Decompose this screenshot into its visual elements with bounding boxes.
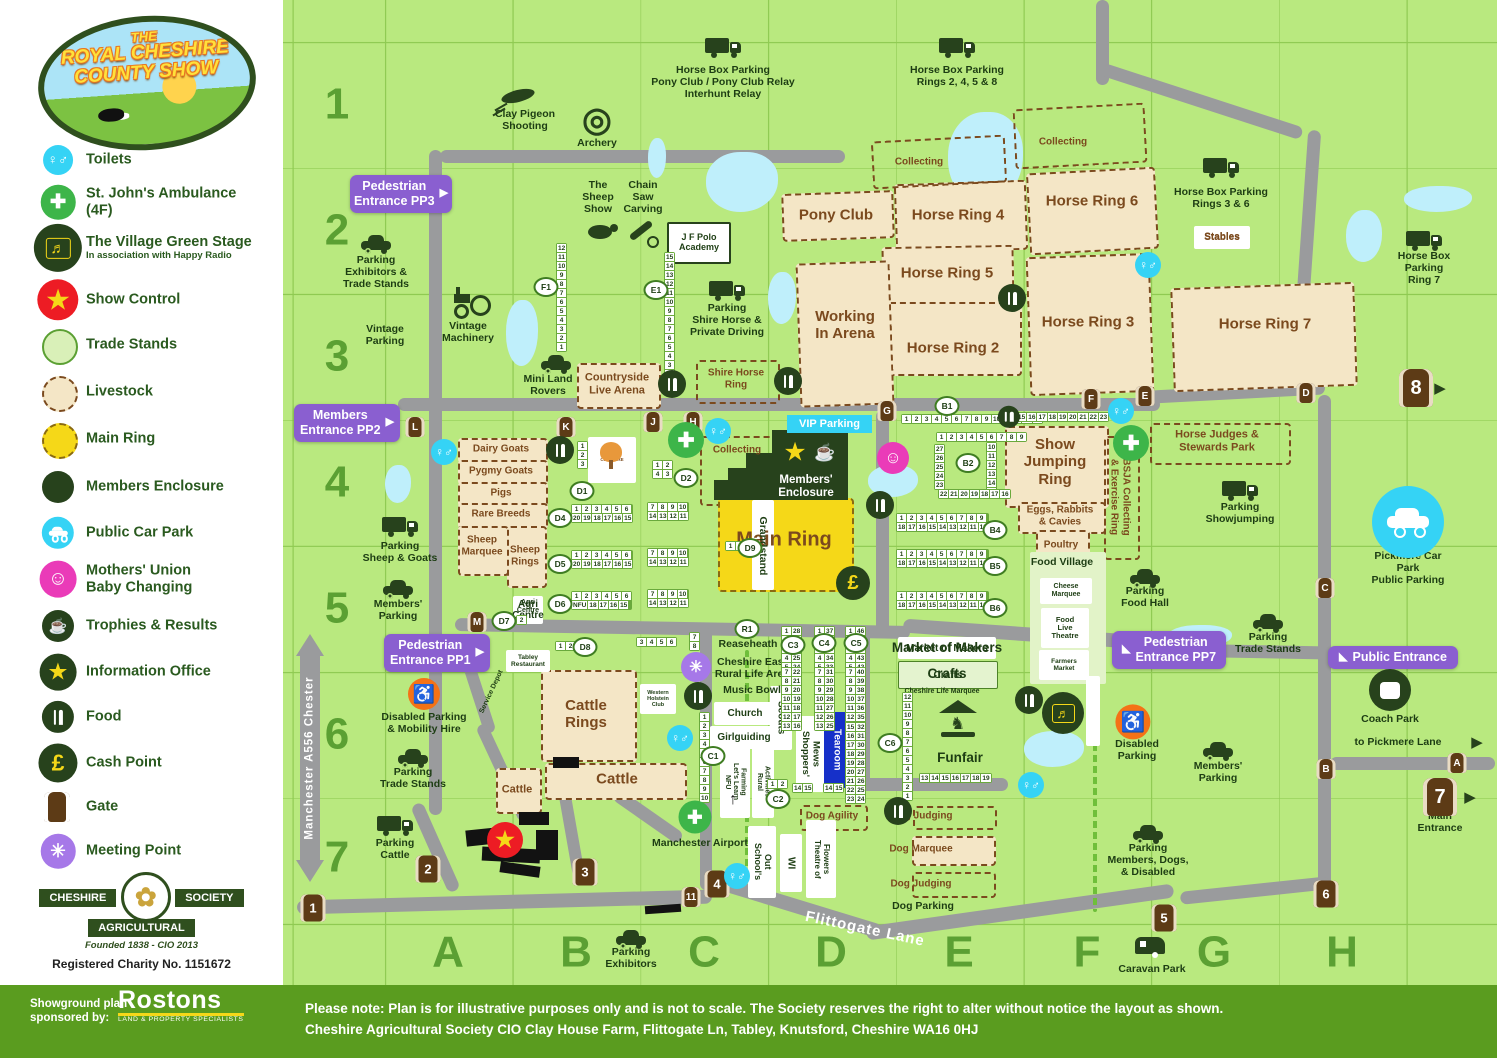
stand-row: 123456 (572, 505, 632, 513)
entrance-label: Public Entrance (1352, 650, 1446, 665)
members-enclosure-area (746, 453, 776, 500)
building (519, 812, 549, 825)
stand-number: 6 (557, 298, 566, 306)
stand-number: 16 (613, 560, 622, 568)
map-label: Parking Sheep & Goats (363, 540, 438, 564)
map-label: Music Bowl (723, 684, 781, 696)
stand-number: 7 (962, 415, 971, 423)
stand-number: 14 (648, 558, 657, 566)
stand-number: 16 (613, 514, 622, 522)
building (499, 861, 540, 877)
trade-strip: 123456789181716151413121110 (896, 513, 989, 532)
mainring-circle-icon (42, 423, 78, 459)
stand-number: 23 (1099, 413, 1108, 421)
footer-notes: Please note: Plan is for illustrative pu… (305, 999, 1223, 1041)
stand-number: 15 (803, 784, 812, 792)
map-label: Dog Marquee (889, 843, 952, 855)
stand-number: 14 (938, 559, 947, 567)
stand-number: 8 (690, 642, 699, 650)
stand-number: 1 (897, 592, 906, 600)
stand-row: 1037 (846, 695, 865, 703)
stand-row: 2324 (846, 795, 865, 803)
stand-number: 30 (825, 677, 834, 685)
pond (385, 465, 411, 503)
pond (768, 272, 796, 324)
arrow-r-icon: ▶ (1471, 733, 1483, 751)
stand-row: 78910 (648, 503, 688, 511)
entrance-pedestrian-entrance-pp1: Pedestrian Entrance PP1▶ (384, 634, 490, 672)
stand-number: 16 (951, 774, 960, 782)
stand-row: 123456789 (897, 514, 988, 522)
stand-number: 14 (938, 601, 947, 609)
stand-number: 6 (947, 592, 956, 600)
stand-number: 4 (846, 654, 855, 662)
trade-strip: 7891014131211 (647, 502, 689, 521)
stand-number: 32 (856, 723, 865, 731)
stand-number: 7 (782, 668, 791, 676)
row-label-3: 3 (325, 332, 349, 383)
map-label: Collecting (713, 444, 761, 456)
stand-number: 3 (700, 731, 709, 739)
stand-number: 4 (927, 514, 936, 522)
map-label: Eggs, Rabbits & Cavies (1027, 505, 1094, 528)
map-label: Cheshire Life Marquee (904, 688, 979, 696)
stand-number: 17 (907, 523, 916, 531)
trade-strip: 1415 (823, 783, 844, 793)
a556-arrow-up-icon (296, 634, 324, 656)
stand-number: 13 (665, 271, 674, 279)
col-label-G: G (1197, 928, 1231, 979)
stand-number: 4 (665, 352, 674, 360)
trade-strip: 123456789181716151413121110 (896, 591, 989, 610)
stand-number: 18 (1048, 413, 1057, 421)
stand-number: 11 (903, 702, 912, 710)
stand-number: 7 (957, 514, 966, 522)
stand-row: 1415 (824, 784, 843, 792)
stand-number: 3 (592, 592, 601, 600)
map-label: Members' Parking (374, 598, 423, 622)
stand-number: 13 (948, 559, 957, 567)
stand-number: 20 (846, 768, 855, 776)
stand-number: 19 (792, 695, 801, 703)
stand-number: 25 (792, 654, 801, 662)
map-label: Countryside Live Arena (585, 371, 649, 396)
rostons-name: Rostons (118, 987, 244, 1016)
rostons-subtitle: LAND & PROPERTY SPECIALISTS (118, 1016, 244, 1023)
stand-number: 39 (856, 677, 865, 685)
plus-icon: ✚ (1113, 425, 1149, 461)
arrow-r-icon: ▶ (1434, 379, 1446, 397)
stand-number: 8 (658, 590, 667, 598)
stand-number: 1 (700, 713, 709, 721)
food-icon (1015, 686, 1043, 714)
stand-number: 21 (846, 777, 855, 785)
trade-strip-badge-D2: D2 (674, 468, 699, 488)
pond (1404, 186, 1472, 212)
footer-bar: Showground plan sponsored by: Rostons LA… (0, 985, 1497, 1058)
public-car-park-icon (42, 517, 74, 549)
stand-number: 2 (947, 433, 956, 441)
stand-number: 17 (599, 601, 608, 609)
stand-number: 7 (846, 668, 855, 676)
gate-3: 3 (573, 859, 598, 886)
stand-number: 31 (856, 732, 865, 740)
stand-number: 3 (557, 325, 566, 333)
trade-strip: 7228219201019111812171316 (781, 667, 802, 731)
stand-number: 15 (834, 784, 843, 792)
map-label: Collecting (1039, 136, 1087, 148)
trade-strip-badge-D4: D4 (548, 508, 573, 528)
trade-strip-badge-C3: C3 (781, 635, 806, 655)
stand-row: 929 (815, 686, 834, 694)
stand-number: 4 (927, 550, 936, 558)
map-label: Parking Shire Horse & Private Driving (690, 302, 764, 338)
pond (648, 138, 666, 178)
trade-strip-badge-D5: D5 (548, 554, 573, 574)
plus-icon: ✚ (679, 801, 712, 834)
map-label: Parking Food Hall (1121, 585, 1169, 609)
stand-number: 9 (815, 686, 824, 694)
stand-number: 3 (665, 361, 674, 369)
gate-B: B (1317, 759, 1336, 779)
map-label: Coach Park (1361, 713, 1419, 725)
row-label-1: 1 (325, 80, 349, 131)
legend-label: Mothers' Union Baby Changing (86, 562, 192, 595)
stand-row: 2225 (846, 786, 865, 794)
legend-label: Members Enclosure (86, 479, 224, 496)
stand-number: 36 (856, 704, 865, 712)
toilets-icon: ♀♂ (1108, 398, 1134, 424)
stand-row: 14131211 (648, 599, 688, 607)
stand-number: 18 (980, 490, 989, 498)
stand-number: 4 (647, 638, 656, 646)
map-label: Horse Judges & Stewards Park (1175, 428, 1259, 453)
stand-number: 9 (982, 415, 991, 423)
food-icon (774, 367, 802, 395)
stand-number: 10 (903, 711, 912, 719)
gate-6: 6 (1314, 881, 1339, 908)
stand-number: 10 (987, 443, 996, 451)
stand-row: 2027 (846, 768, 865, 776)
stand-number: 1 (897, 550, 906, 558)
stand-number: 22 (939, 490, 948, 498)
stand-row: 1415 (793, 784, 812, 792)
stand-number: 18 (592, 514, 601, 522)
stand-number: 14 (648, 599, 657, 607)
row-label-6: 6 (325, 710, 349, 761)
trade-strip: 12 (767, 779, 788, 789)
stand-row: 78910 (648, 549, 688, 557)
stand-number: 12 (557, 244, 566, 252)
disabled-icon: ♿ (408, 678, 440, 710)
stand-number: 1 (902, 415, 911, 423)
stand-number: NFU (572, 601, 587, 609)
livestock-circle-icon (42, 376, 78, 412)
legend-label: St. John's Ambulance (4F) (86, 185, 236, 218)
stand-number: 17 (846, 741, 855, 749)
building (645, 904, 681, 914)
stand-number: 18 (792, 704, 801, 712)
map-box: J F Polo Academy (667, 222, 731, 264)
map-label: Horse Ring 4 (912, 206, 1005, 223)
stand-number: 15 (623, 560, 632, 568)
stand-number: 13 (658, 558, 667, 566)
stand-row: 1217 (782, 713, 801, 721)
stand-number: 15 (928, 601, 937, 609)
stand-number: 13 (987, 470, 996, 478)
stand-number: 7 (815, 668, 824, 676)
legend-label: Trade Stands (86, 337, 177, 354)
col-label-D: D (815, 928, 847, 979)
map-label: Pigs (490, 487, 511, 499)
stand-number: 5 (937, 592, 946, 600)
trade-strip-badge-C2: C2 (766, 789, 791, 809)
map-box: Cheese Marquee (1040, 578, 1092, 604)
stand-number: 13 (920, 774, 929, 782)
stand-number: 11 (782, 704, 791, 712)
col-label-E: E (944, 928, 973, 979)
road (1180, 876, 1331, 905)
stand-number: 2 (557, 334, 566, 342)
gate-C: C (1316, 578, 1335, 598)
stand-number: 43 (856, 654, 865, 662)
stand-number: 1 (578, 442, 587, 450)
stand-number: 7 (557, 289, 566, 297)
stand-row: 123456789 (937, 433, 1026, 441)
stand-number: 19 (970, 490, 979, 498)
trade-strip: 121110987654321 (902, 692, 913, 801)
stand-number: 2 (907, 550, 916, 558)
trade-strip: 2 (516, 615, 527, 625)
trade-strip: 1415 (792, 783, 813, 793)
stand-number: 10 (815, 695, 824, 703)
map-label: Horse Ring 2 (907, 339, 1000, 356)
entrance-label: Pedestrian Entrance PP7 (1135, 635, 1216, 665)
stand-row: 14131211 (648, 512, 688, 520)
stand-number: 20 (572, 560, 581, 568)
stand-number: 8 (972, 415, 981, 423)
stand-number: 5 (612, 592, 621, 600)
stand-number: 6 (947, 550, 956, 558)
stand-number: 9 (557, 271, 566, 279)
map-label: Parking Members, Dogs, & Disabled (1107, 842, 1188, 878)
stand-row: 1019 (782, 695, 801, 703)
toilets-icon: ♀♂ (1135, 252, 1161, 278)
stand-number: 9 (977, 514, 986, 522)
stand-number: 1 (937, 433, 946, 441)
stand-number: 8 (967, 514, 976, 522)
stand-number: 15 (665, 253, 674, 261)
stand-number: 27 (825, 704, 834, 712)
stand-number: 28 (856, 759, 865, 767)
col-label-B: B (560, 928, 592, 979)
legend-label: Meeting Point (86, 843, 181, 860)
stand-number: 23 (935, 481, 944, 489)
stand-number: 6 (947, 514, 956, 522)
trade-strip: 123 (577, 441, 588, 469)
map-label: Horse Ring 3 (1042, 313, 1135, 330)
stand-number: 7 (957, 550, 966, 558)
stand-number: 11 (679, 558, 688, 566)
map-label: Parking Trade Stands (1235, 631, 1301, 655)
footer-note-2: Cheshire Agricultural Society CIO Clay H… (305, 1020, 1223, 1041)
map-label: Stables (1204, 231, 1240, 243)
map-label: Horse Box Parking Pony Club / Pony Club … (651, 64, 795, 100)
stand-row: 1127 (815, 704, 834, 712)
trade-strip: 151413121110987654321 (664, 252, 675, 388)
stand-number: 30 (856, 741, 865, 749)
stand-number: 10 (782, 695, 791, 703)
entrance-arrow-icon: ▶ (476, 646, 484, 659)
stand-row: 740 (846, 668, 865, 676)
stand-number: 1 (556, 642, 565, 650)
stand-number: 31 (825, 668, 834, 676)
entrance-arrow-icon: ▶ (440, 187, 448, 200)
stand-row: 128 (782, 627, 801, 635)
stand-number: 4 (782, 654, 791, 662)
stand-number: 1 (653, 461, 662, 469)
stand-number: 9 (1017, 433, 1026, 441)
stand-number: 29 (856, 750, 865, 758)
pond (1024, 731, 1084, 767)
col-label-F: F (1074, 928, 1101, 979)
pond (506, 300, 538, 366)
pond (1346, 210, 1382, 262)
stand-row: 1532 (846, 723, 865, 731)
stand-row: 722 (782, 668, 801, 676)
legend-label: Trophies & Results (86, 618, 217, 635)
stand-number: 9 (846, 686, 855, 694)
stand-number: 4 (557, 316, 566, 324)
trade-strip: 123456NFU18171615 (571, 591, 632, 610)
stand-number: 14 (648, 512, 657, 520)
show-control-icon: ★ (487, 822, 523, 858)
map-box: Western Holstein Club (640, 684, 676, 714)
food-icon (998, 406, 1020, 428)
stand-number: 5 (665, 343, 674, 351)
map-label: Cheshire East Rural Life Area (715, 656, 789, 680)
stand-number: 6 (952, 415, 961, 423)
gate-icon (44, 792, 70, 822)
stand-row: 201918171615 (572, 514, 632, 522)
stand-number: 28 (825, 695, 834, 703)
stand-row: 123456789 (897, 592, 988, 600)
plus-icon: ✚ (668, 422, 704, 458)
stand-number: 14 (824, 784, 833, 792)
food-icon (42, 701, 74, 733)
stand-row: 123456 (572, 551, 632, 559)
map-label: Caravan Park (1118, 963, 1185, 975)
stand-number: 11 (815, 704, 824, 712)
stand-number: 38 (856, 686, 865, 694)
row-label-2: 2 (325, 206, 349, 257)
society-ribbon-left: CHESHIRE (39, 889, 116, 907)
trade-strip-badge-R1: R1 (735, 619, 760, 639)
stand-number: 19 (1058, 413, 1067, 421)
stand-number: 12 (987, 461, 996, 469)
stand-number: 37 (856, 695, 865, 703)
stand-number: 20 (959, 490, 968, 498)
map-label: Dog Judging (890, 878, 951, 890)
map-label: Cattle Rings (565, 697, 607, 732)
trade-strip: 22212019181716 (938, 489, 1011, 499)
map-label: The Sheep Show (582, 179, 614, 215)
trade-strip: 121110987654321 (556, 243, 567, 352)
gate-5: 5 (1152, 905, 1177, 932)
legend-label: Show Control (86, 292, 180, 309)
stand-number: 12 (958, 559, 967, 567)
stand-number: 2 (778, 780, 787, 788)
legend-label: Livestock (86, 384, 153, 401)
gate-K: K (557, 417, 576, 437)
legend-label: Cash Point (86, 755, 162, 772)
legend-sublabel: In association with Happy Radio (86, 251, 252, 262)
stand-number: 14 (665, 262, 674, 270)
map-label: Chain Saw Carving (623, 179, 662, 215)
stage-icon: ♬ (34, 224, 82, 272)
stand-number: 4 (602, 551, 611, 559)
trade-strip: 123456789 (936, 432, 1027, 442)
stand-number: 6 (667, 638, 676, 646)
stand-number: 9 (700, 785, 709, 793)
map-label: Food Village (1031, 556, 1093, 568)
trade-strip-badge-C4: C4 (812, 633, 837, 653)
stand-row: 1928 (846, 759, 865, 767)
stand-number: 16 (917, 523, 926, 531)
trade-strip: 123456201918171615 (571, 504, 633, 523)
stand-number: 2 (903, 783, 912, 791)
trade-strip-badge-B4: B4 (983, 520, 1008, 540)
stand-number: 16 (1027, 413, 1036, 421)
stand-number: 1 (726, 542, 735, 550)
carpark-icon (1372, 486, 1444, 558)
stand-row: NFU18171615 (572, 601, 631, 609)
stand-number: 7 (648, 549, 657, 557)
map-label: Horse Box Parking Rings 3 & 6 (1174, 186, 1268, 210)
stand-number: 18 (897, 559, 906, 567)
stand-number: 12 (958, 601, 967, 609)
stand-number: 12 (668, 558, 677, 566)
stand-row: 920 (782, 686, 801, 694)
mothers-icon: ☺ (40, 561, 77, 598)
stand-number: 7 (997, 433, 1006, 441)
trade-strip: 3456 (636, 637, 677, 647)
stand-number: 5 (557, 307, 566, 315)
toilets-icon: ♀♂ (667, 725, 693, 751)
stand-number: 17 (990, 490, 999, 498)
map-label: Disabled Parking & Mobility Hire (381, 711, 466, 735)
legend-label: The Village Green StageIn association wi… (86, 234, 252, 262)
trade-strip: 78 (689, 632, 700, 651)
stand-number: 8 (967, 550, 976, 558)
trade-strip-badge-B5: B5 (983, 556, 1008, 576)
food-icon (866, 491, 894, 519)
stand-number: 22 (846, 786, 855, 794)
trade-strip: 7891014131211 (647, 548, 689, 567)
map-label: Horse Ring 5 (901, 264, 994, 281)
stand-number: 16 (917, 559, 926, 567)
entrance-arrow-icon: ◣ (1339, 651, 1347, 664)
society-founded: Founded 1838 - CIO 2013 (0, 940, 283, 951)
stand-number: 8 (782, 677, 791, 685)
map-label: Show Jumping Ring (1024, 436, 1087, 488)
stand-number: 4 (927, 592, 936, 600)
entrance-arrow-icon: ◣ (1122, 643, 1130, 656)
map-label: Shire Horse Ring (708, 368, 764, 391)
map-label: Members' Enclosure (778, 474, 834, 500)
map-box: WI (780, 834, 802, 892)
stand-row: 151617181920212223 (1017, 413, 1108, 421)
